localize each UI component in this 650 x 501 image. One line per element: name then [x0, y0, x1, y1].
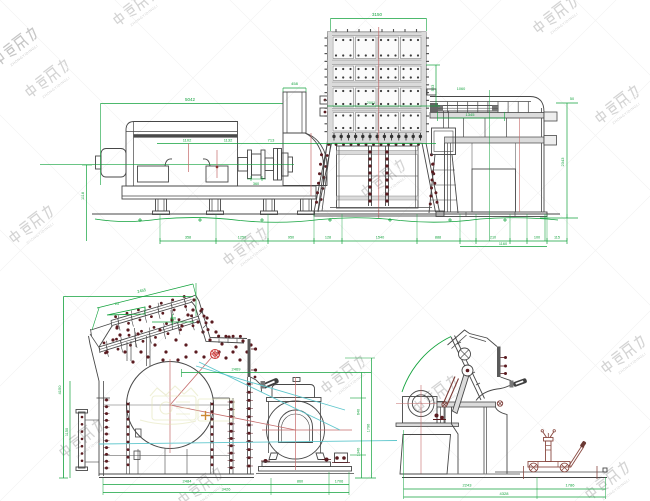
svg-text:553: 553: [430, 84, 435, 91]
svg-text:1150: 1150: [65, 428, 69, 436]
svg-text:2243: 2243: [463, 483, 473, 488]
svg-text:950: 950: [288, 236, 294, 240]
svg-text:128: 128: [325, 236, 331, 240]
svg-text:2343: 2343: [560, 157, 565, 167]
svg-text:5042: 5042: [185, 97, 196, 102]
svg-text:466: 466: [170, 317, 176, 321]
svg-text:1118: 1118: [81, 192, 85, 200]
svg-text:860: 860: [297, 480, 303, 484]
svg-text:1132: 1132: [224, 138, 233, 143]
svg-text:1540: 1540: [376, 236, 384, 240]
svg-text:2469: 2469: [232, 367, 242, 372]
svg-text:4150: 4150: [57, 385, 62, 395]
svg-text:1160: 1160: [499, 242, 507, 246]
svg-text:360: 360: [253, 182, 259, 186]
svg-text:1060: 1060: [457, 87, 465, 91]
svg-text:25: 25: [115, 302, 119, 306]
svg-text:1786: 1786: [566, 483, 576, 488]
svg-text:2484: 2484: [183, 479, 193, 484]
svg-text:50: 50: [570, 97, 574, 101]
svg-text:640: 640: [357, 409, 361, 415]
svg-text:1706: 1706: [335, 480, 343, 484]
svg-text:888: 888: [435, 236, 441, 240]
svg-text:1250: 1250: [238, 236, 246, 240]
svg-text:1796: 1796: [367, 424, 371, 432]
svg-text:358: 358: [185, 236, 191, 240]
svg-text:210: 210: [490, 236, 496, 240]
svg-text:3150: 3150: [372, 12, 383, 17]
svg-text:1345: 1345: [466, 112, 476, 117]
svg-text:2001: 2001: [367, 101, 375, 105]
svg-text:458: 458: [291, 81, 298, 86]
svg-text:100: 100: [534, 236, 540, 240]
svg-text:3426: 3426: [222, 487, 232, 492]
svg-text:115: 115: [554, 236, 560, 240]
svg-text:713: 713: [268, 138, 275, 143]
svg-text:4328: 4328: [500, 491, 510, 496]
svg-text:1102: 1102: [183, 138, 192, 143]
